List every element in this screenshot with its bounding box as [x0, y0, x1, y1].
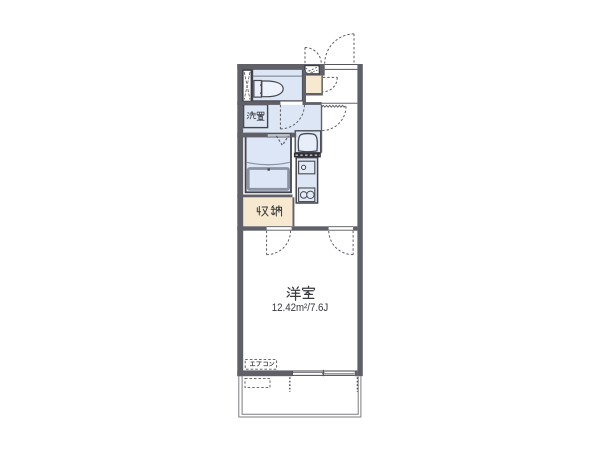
svg-text:12.42m²/7.6J: 12.42m²/7.6J [272, 302, 329, 314]
